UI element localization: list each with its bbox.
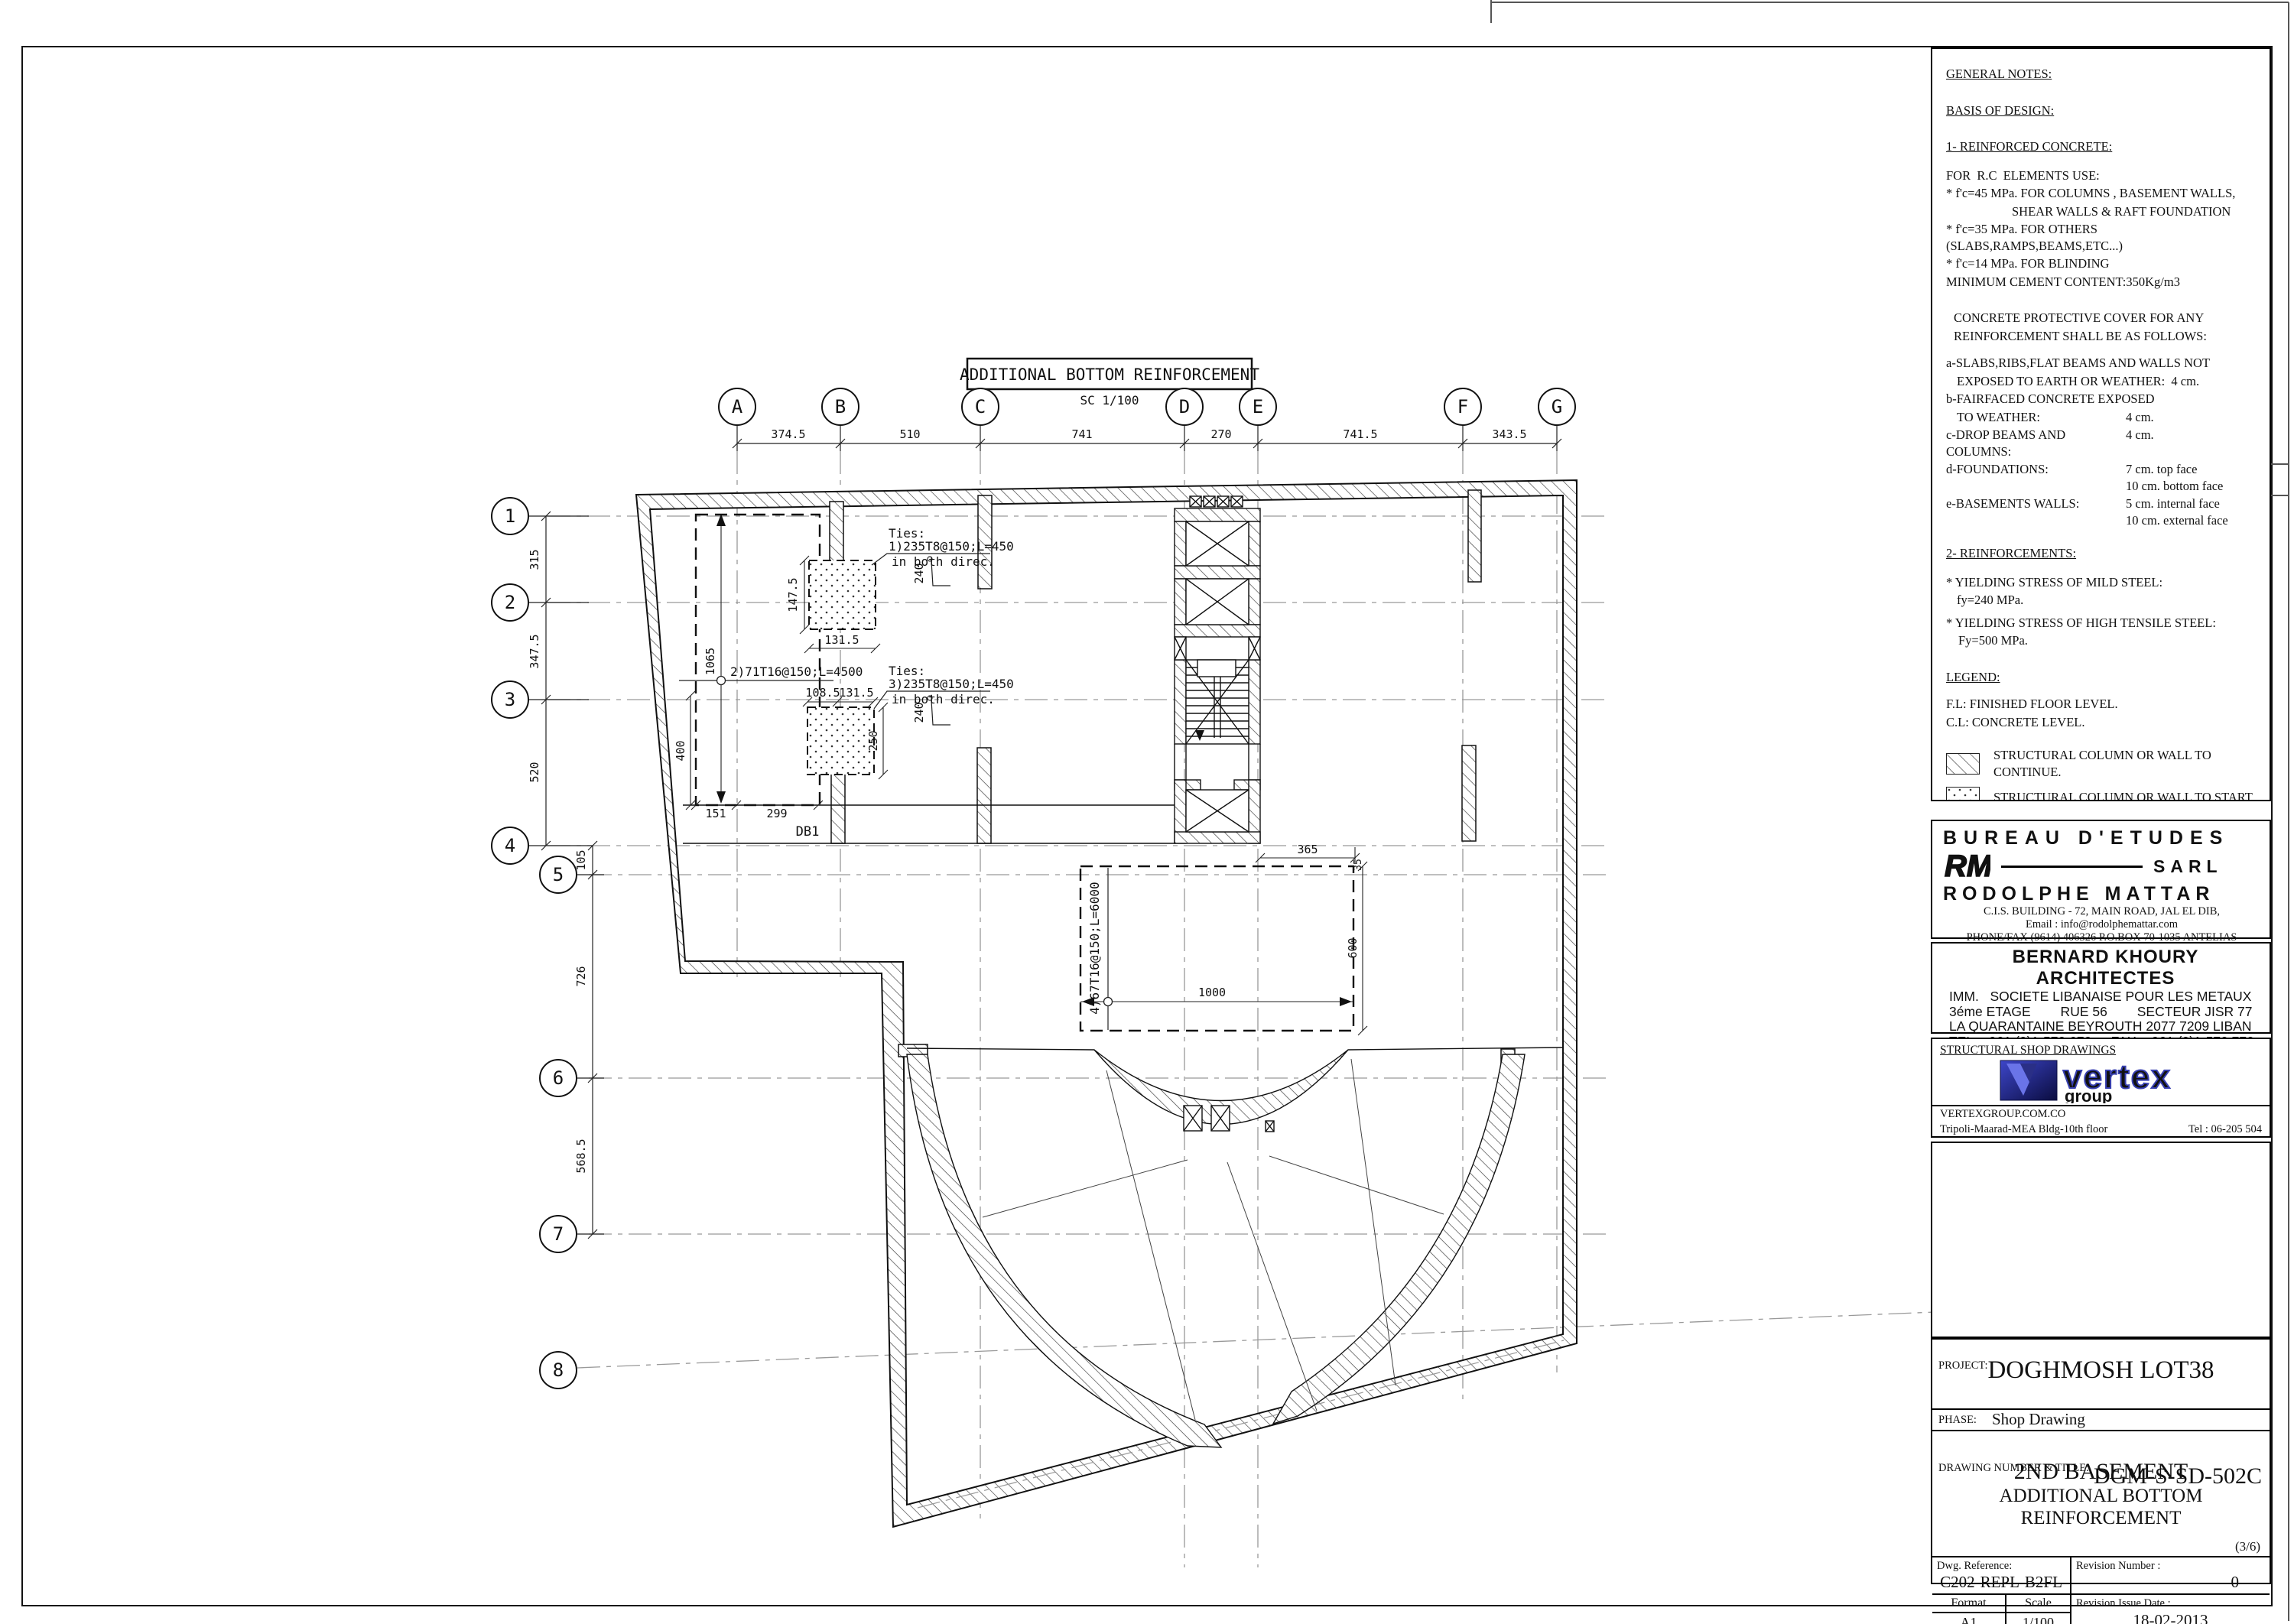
legend-fl: F.L: FINISHED FLOOR LEVEL. (1946, 696, 2259, 713)
note-line: * YIELDING STRESS OF MILD STEEL: (1946, 574, 2259, 591)
core-braces (1175, 637, 1260, 660)
stairwell (1186, 660, 1249, 744)
hatch-swatch-icon (1946, 753, 1980, 775)
revision-date-value: 18-02-2013 (2071, 1611, 2270, 1624)
bureau-name: RODOLPHE MATTAR (1943, 883, 2260, 905)
grid-row-label: 4 (505, 835, 515, 856)
row-grid: 1 2 3 4 5 6 7 8 315 347.5 520 105 726 56… (492, 498, 604, 1389)
revision-number-label: Revision Number : (2076, 1560, 2160, 1573)
note-value: 7 cm. top face (2126, 462, 2197, 476)
bureau-addr2: Email : info@rodolphemattar.com (1943, 918, 2260, 931)
note-line: b-FAIRFACED CONCRETE EXPOSED (1946, 391, 2259, 408)
notes-basis: BASIS OF DESIGN: (1946, 102, 2259, 119)
ramp (907, 1047, 1563, 1447)
format-label: Format (1932, 1595, 2005, 1613)
project-label: PROJECT: (1938, 1359, 1988, 1372)
legend-item-label: STRUCTURAL COLUMN OR WALL TO START. (1993, 789, 2255, 801)
grid-row-label: 3 (505, 689, 515, 710)
shop-website: VERTEXGROUP.COM.CO (1932, 1106, 2270, 1122)
note-line: MINIMUM CEMENT CONTENT:350Kg/m3 (1946, 274, 2259, 291)
shop-drawings-box: STRUCTURAL SHOP DRAWINGS vertex group VE… (1931, 1038, 2271, 1138)
architect-line: LA QUARANTAINE BEYROUTH 2077 7209 LIBAN (1949, 1019, 2262, 1034)
bar2-label: 2)71T16@150;L=4500 (730, 664, 863, 679)
drawing-title-row: DRAWING NUMBER & TITLE: DGM-S-SD-502C 2N… (1932, 1459, 2270, 1557)
grid-col-label: C (975, 396, 986, 417)
elevator-core (1175, 496, 1260, 843)
dots-swatch-icon (1946, 787, 1980, 801)
grid-col-label: D (1179, 396, 1190, 417)
grid-row-label: 7 (553, 1223, 564, 1245)
dim-35: 35 (1353, 859, 1364, 871)
bent-bar-dim-2: 240 (912, 702, 926, 723)
architect-line: IMM. SOCIETE LIBANAISE POUR LES METAUX (1949, 989, 2262, 1005)
note-label: d-FOUNDATIONS: (1946, 461, 2126, 494)
dim-250: 250 (866, 730, 880, 751)
sheet-index: (3/6) (2235, 1539, 2260, 1554)
grid-row-label: 2 (505, 592, 515, 613)
notes-rc-title: 1- REINFORCED CONCRETE: (1946, 138, 2259, 155)
plan-title-box: ADDITIONAL BOTTOM REINFORCEMENT SC 1/100 (960, 359, 1259, 408)
dim-151: 151 (705, 807, 726, 820)
notes-title: GENERAL NOTES: (1946, 66, 2259, 83)
note-line: REINFORCEMENT SHALL BE AS FOLLOWS: (1954, 328, 2259, 345)
general-notes-box: GENERAL NOTES: BASIS OF DESIGN: 1- REINF… (1931, 47, 2271, 801)
grid-col-dim: 510 (899, 427, 920, 441)
vertex-logo: vertex group (1987, 1059, 2216, 1103)
dwg-reference-label: Dwg. Reference: (1937, 1560, 2012, 1573)
dim-1065: 1065 (703, 648, 717, 675)
db1-label: DB1 (796, 824, 820, 840)
architect-line: 3éme ETAGE RUE 56 SECTEUR JISR 77 (1949, 1005, 2262, 1020)
note-label: c-DROP BEAMS AND COLUMNS: (1946, 427, 2126, 460)
ramp-right-band (1273, 1054, 1525, 1424)
legend-cl: C.L: CONCRETE LEVEL. (1946, 714, 2259, 731)
grid-row-dim: 347.5 (528, 634, 541, 668)
vertex-logo-sub: group (2065, 1086, 2112, 1103)
db1-beam (683, 805, 1175, 843)
ties1-line3: in both direc. (892, 554, 995, 569)
note-line: EXPOSED TO EARTH OR WEATHER: 4 cm. (1957, 373, 2259, 390)
note-line: FOR R.C ELEMENTS USE: (1946, 167, 2259, 184)
project-box: PROJECT: DOGHMOSH LOT38 PHASE: Shop Draw… (1931, 1338, 2271, 1584)
dim-131-5b: 131.5 (839, 686, 873, 700)
note-value: 4 cm. (2126, 427, 2259, 460)
ties1-line2: 1)235T8@150;L=450 (889, 539, 1014, 554)
plan-scale: SC 1/100 (1080, 393, 1139, 408)
drawing-sheet: ADDITIONAL BOTTOM REINFORCEMENT SC 1/100 (0, 0, 2294, 1624)
drawing-number-label: DRAWING NUMBER & TITLE: (1938, 1462, 2089, 1475)
dim-365: 365 (1297, 843, 1318, 856)
legend-item: STRUCTURAL COLUMN OR WALL TO START. (1946, 787, 2259, 801)
note-value: 10 cm. bottom face (2126, 479, 2223, 493)
revision-date-cell: Revision Issue Date : 18-02-2013 (2071, 1595, 2270, 1624)
drawing-number: DGM-S-SD-502C (2094, 1463, 2262, 1489)
grid-row-dim: 568.5 (574, 1138, 588, 1173)
grid-row-dim: 105 (574, 849, 588, 870)
bent-bar-dim-1: 240 (912, 563, 926, 583)
phase-row: PHASE: Shop Drawing (1932, 1410, 2270, 1431)
grid-row-dim: 726 (574, 966, 588, 986)
note-line: * YIELDING STRESS OF HIGH TENSILE STEEL: (1946, 615, 2259, 632)
grid-row-dim: 520 (528, 762, 541, 782)
note-line: * f'c=45 MPa. FOR COLUMNS , BASEMENT WAL… (1946, 185, 2259, 202)
format-scale-row: Format A1 Scale 1/100 Revision Issue Dat… (1932, 1595, 2270, 1624)
dim-1000: 1000 (1198, 986, 1226, 999)
phase-label: PHASE: (1938, 1414, 1977, 1427)
column-grid: A B C D E F G 374.5 510 741 270 741.5 34… (719, 388, 1575, 451)
note-line: a-SLABS,RIBS,FLAT BEAMS AND WALLS NOT (1946, 355, 2259, 372)
grid-col-label: B (835, 396, 846, 417)
legend-item: STRUCTURAL COLUMN OR WALL TO CONTINUE. (1946, 747, 2259, 780)
shop-heading: STRUCTURAL SHOP DRAWINGS (1932, 1039, 2270, 1057)
bar4-label: 4)67T16@150;L=6000 (1087, 882, 1102, 1014)
annotations: Ties: 1)235T8@150;L=450 in both direc. T… (679, 526, 1113, 1030)
grid-col-dim: 741.5 (1343, 427, 1377, 441)
dim-400: 400 (674, 740, 687, 761)
project-row: PROJECT: DOGHMOSH LOT38 (1932, 1356, 2270, 1410)
grid-row-label: 6 (553, 1067, 564, 1089)
architect-box: BERNARD KHOURY ARCHITECTES IMM. SOCIETE … (1931, 942, 2271, 1034)
bureau-addr1: C.I.S. BUILDING - 72, MAIN ROAD, JAL EL … (1943, 905, 2260, 918)
revision-number-cell: Revision Number : 0 (2071, 1557, 2270, 1593)
note-line: CONCRETE PROTECTIVE COVER FOR ANY (1954, 310, 2259, 326)
dim-108-5: 108.5 (805, 686, 840, 700)
dim-147-5: 147.5 (786, 577, 800, 612)
grid-col-dim: 343.5 (1492, 427, 1526, 441)
grid-col-label: E (1253, 396, 1263, 417)
revision-date-label: Revision Issue Date : (2076, 1597, 2171, 1610)
dim-299: 299 (766, 807, 787, 820)
architect-name: BERNARD KHOURY ARCHITECTES (1949, 947, 2262, 989)
grid-row-label: 8 (553, 1359, 564, 1381)
format-cell: Format A1 (1932, 1595, 2006, 1624)
note-value: 5 cm. internal face (2126, 496, 2220, 511)
note-line: * f'c=14 MPa. FOR BLINDING (1946, 255, 2259, 272)
shop-address: Tripoli-Maarad-MEA Bldg-10th floor (1940, 1123, 2107, 1135)
ties3-line3: in both direc. (892, 692, 995, 706)
note-line: * f'c=35 MPa. FOR OTHERS (SLABS,RAMPS,BE… (1946, 221, 2259, 254)
note-label: e-BASEMENTS WALLS: (1946, 495, 2126, 528)
rm-logo: RM (1943, 851, 1990, 882)
dim-131-5a: 131.5 (824, 633, 859, 647)
grid-col-label: A (732, 396, 743, 417)
drawing-title-3: REINFORCEMENT (1932, 1507, 2270, 1529)
bureau-sarl: SARL (2153, 856, 2223, 877)
note-label: TO WEATHER: (1957, 409, 2126, 426)
format-value: A1 (1932, 1613, 2005, 1624)
grid-col-label: G (1552, 396, 1562, 417)
scale-label: Scale (2006, 1595, 2070, 1613)
grid-col-dim: 741 (1071, 427, 1092, 441)
note-value: 4 cm. (2126, 409, 2259, 426)
dwg-reference-cell: Dwg. Reference: C202-REPL-B2FL (1932, 1557, 2071, 1593)
legend-item-label: STRUCTURAL COLUMN OR WALL TO CONTINUE. (1993, 747, 2259, 780)
grid-row-dim: 315 (528, 549, 541, 570)
grid-col-dim: 374.5 (771, 427, 805, 441)
grid-row-label: 1 (505, 505, 515, 527)
dwg-reference-value: C202-REPL-B2FL (1932, 1573, 2070, 1592)
shop-tel: Tel : 06-205 504 (2188, 1123, 2262, 1135)
ties3-line2: 3)235T8@150;L=450 (889, 677, 1014, 691)
grid-col-label: F (1457, 396, 1468, 417)
phase-value: Shop Drawing (1992, 1410, 2085, 1429)
scale-value: 1/100 (2006, 1613, 2070, 1624)
grid-col-dim: 270 (1210, 427, 1231, 441)
revision-number-value: 0 (2231, 1573, 2240, 1592)
spare-box (1931, 1142, 2271, 1338)
note-line: SHEAR WALLS & RAFT FOUNDATION (2012, 203, 2259, 220)
ramp-slab-edges (907, 1047, 1563, 1050)
bureau-line1: BUREAU D'ETUDES (1943, 827, 2260, 849)
note-line: Fy=500 MPa. (1958, 632, 2259, 649)
scale-cell: Scale 1/100 (2006, 1595, 2071, 1624)
bureau-box: BUREAU D'ETUDES RM SARL RODOLPHE MATTAR … (1931, 820, 2271, 939)
core-shaft-gap (1175, 744, 1260, 780)
dim-600: 600 (1346, 937, 1360, 958)
notes-reinf-title: 2- REINFORCEMENTS: (1946, 545, 2259, 562)
dimensions: 1065 147.5 131.5 108.5 131.5 250 400 151… (674, 514, 1367, 1035)
rm-logo-text: RM (1945, 851, 1990, 882)
bureau-divider (2001, 866, 2143, 868)
note-line: fy=240 MPa. (1957, 592, 2259, 609)
plan-title: ADDITIONAL BOTTOM REINFORCEMENT (960, 365, 1259, 384)
legend-title: LEGEND: (1946, 669, 2259, 686)
reference-row: Dwg. Reference: C202-REPL-B2FL Revision … (1932, 1557, 2270, 1595)
note-value: 10 cm. external face (2126, 513, 2228, 528)
grid-row-label: 5 (553, 864, 564, 885)
bottom-wall-centerline (918, 1340, 1564, 1508)
